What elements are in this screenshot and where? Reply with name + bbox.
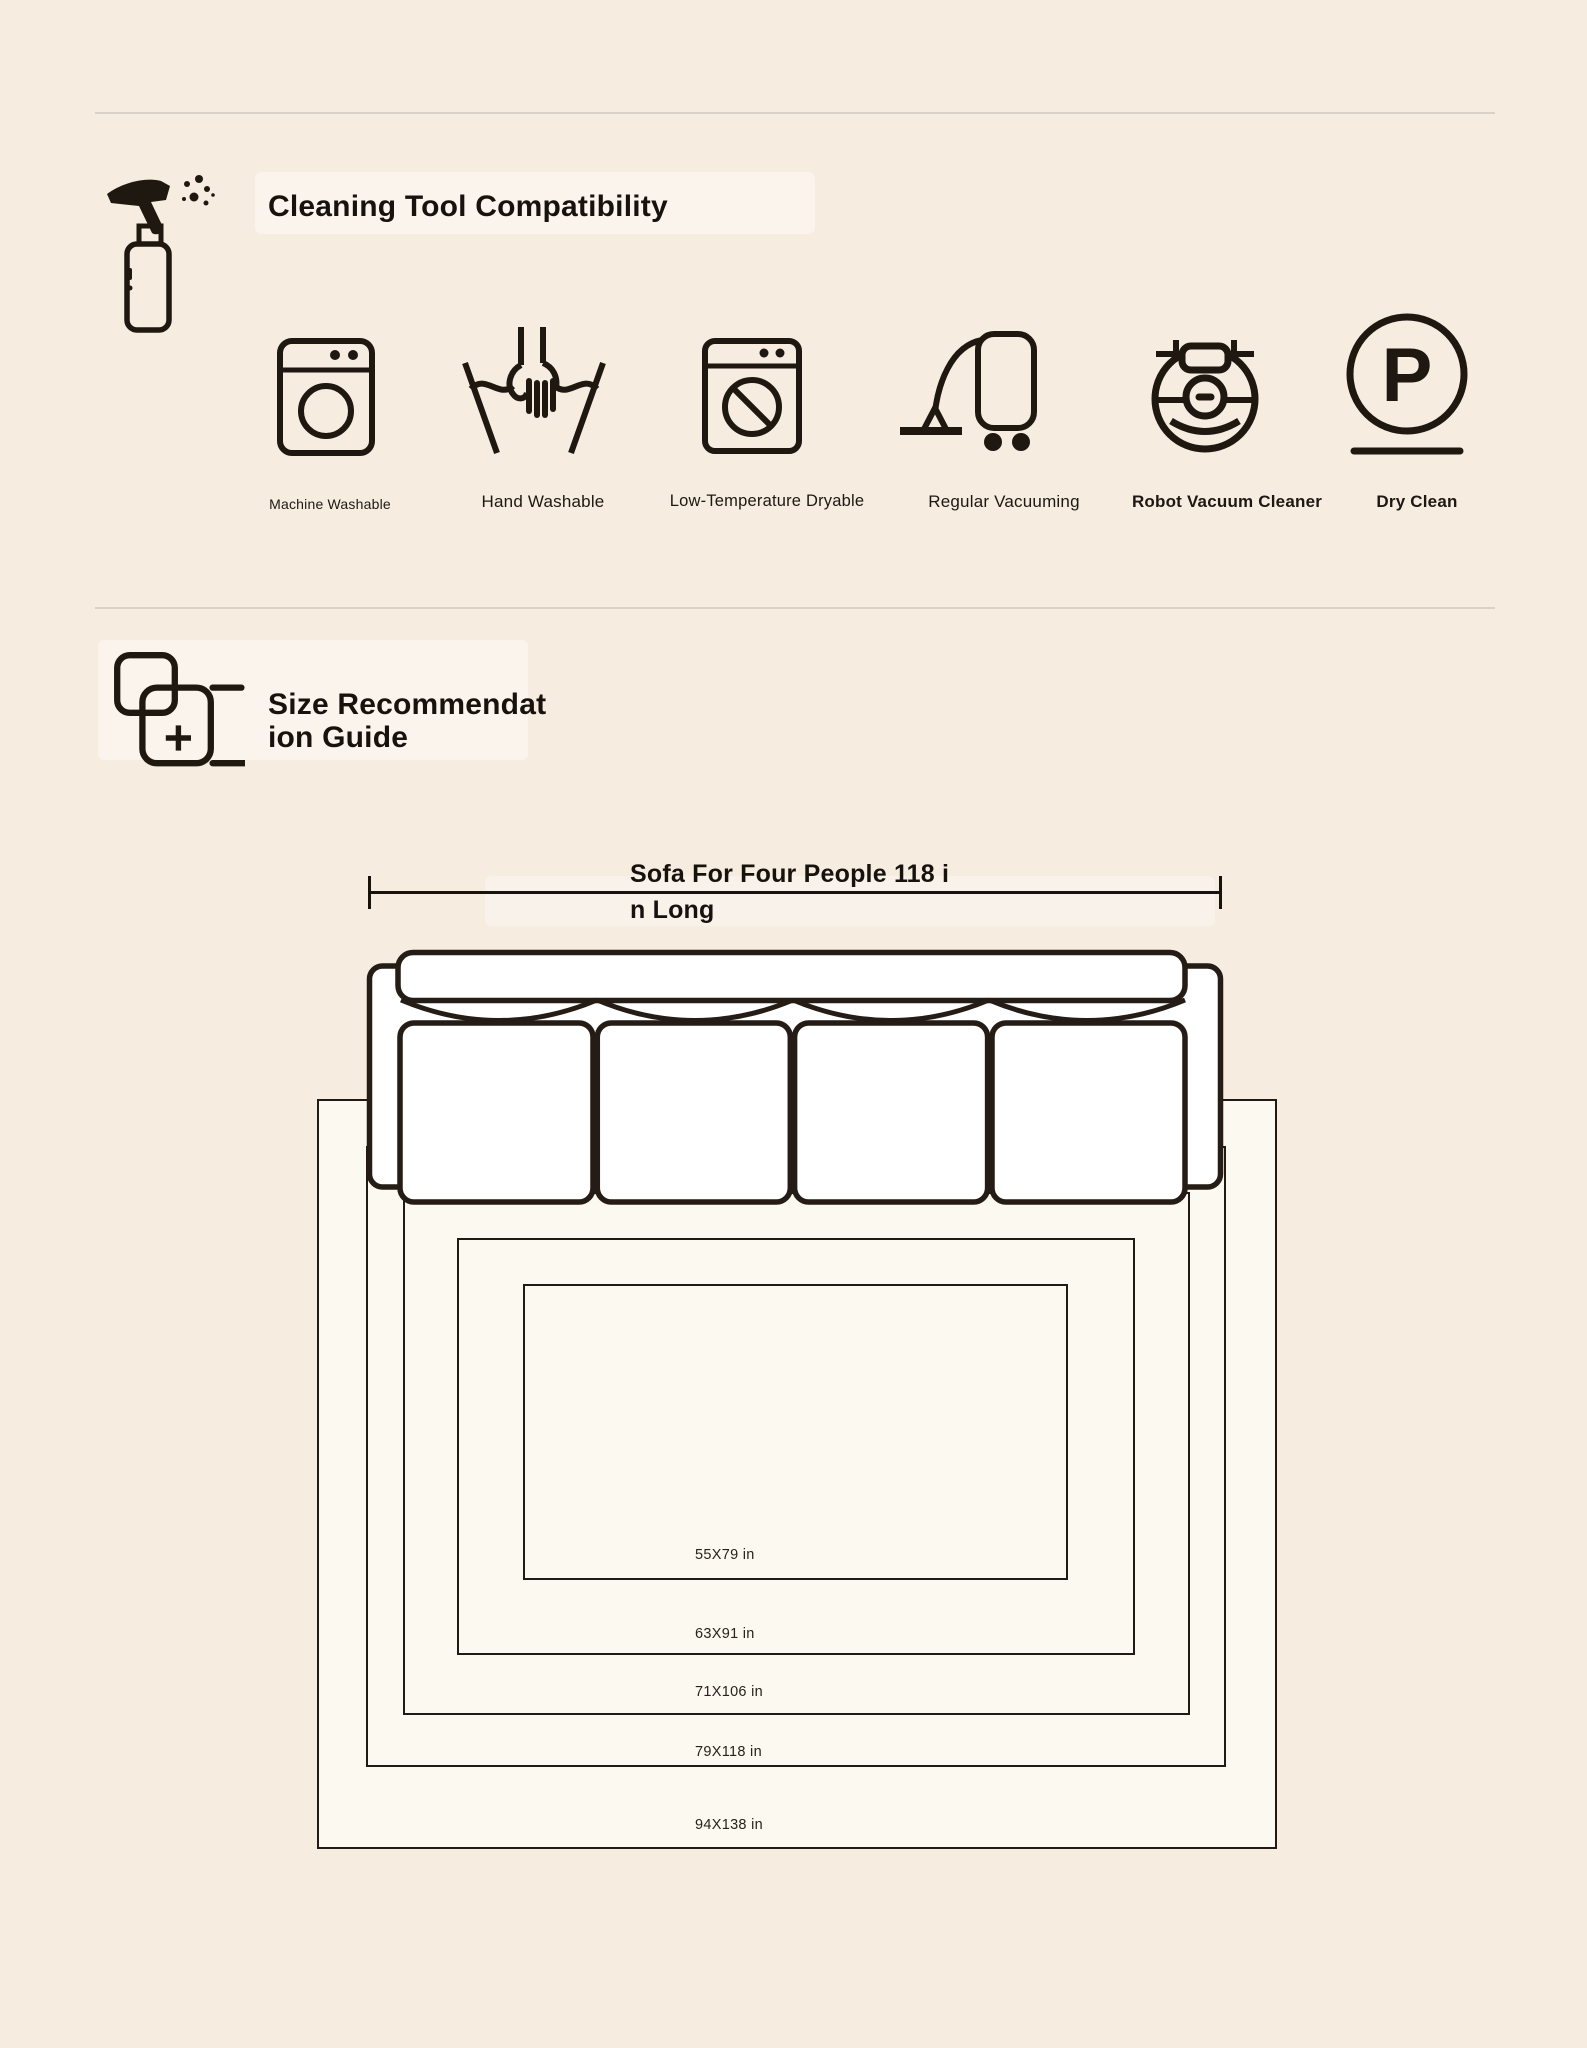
rug-size-label-79x118: 79X118 in bbox=[695, 1744, 762, 1760]
sofa-back-cushion bbox=[398, 953, 1185, 1001]
dry-clean-icon: P bbox=[1342, 308, 1472, 458]
care-label-hand-washable: Hand Washable bbox=[482, 492, 605, 512]
sofa-seat-cushion bbox=[597, 1023, 790, 1202]
size-section-title: Size Recommendat ion Guide bbox=[268, 688, 546, 754]
sofa-seat-cushion bbox=[400, 1023, 593, 1202]
rug-rect-55x79 bbox=[523, 1284, 1068, 1580]
care-label-regular-vacuuming: Regular Vacuuming bbox=[928, 492, 1079, 512]
spray-bottle-icon bbox=[103, 172, 228, 337]
care-label-dry-clean: Dry Clean bbox=[1376, 492, 1457, 512]
vacuum-icon bbox=[890, 328, 1042, 458]
hand-wash-icon bbox=[455, 323, 613, 458]
care-label-machine-washable: Machine Washable bbox=[269, 496, 391, 512]
washing-machine-icon bbox=[275, 336, 377, 458]
robot-vacuum-icon bbox=[1146, 336, 1264, 454]
section-divider-top bbox=[95, 112, 1495, 114]
size-compare-icon bbox=[110, 648, 245, 783]
care-label-robot-vacuum: Robot Vacuum Cleaner bbox=[1132, 492, 1322, 512]
sofa-seat-cushion bbox=[992, 1023, 1185, 1202]
sofa-dimension-label-line2: n Long bbox=[630, 892, 990, 928]
rug-size-label-94x138: 94X138 in bbox=[695, 1817, 763, 1833]
sofa-dimension-tick-right bbox=[1219, 876, 1222, 909]
care-label-low-temp-dryable: Low-Temperature Dryable bbox=[670, 492, 864, 511]
sofa-dimension-tick-left bbox=[368, 876, 371, 909]
sofa-seat-cushion bbox=[795, 1023, 988, 1202]
rug-size-label-71x106: 71X106 in bbox=[695, 1684, 763, 1700]
size-section-title-line2: ion Guide bbox=[268, 721, 546, 754]
dry-clean-letter: P bbox=[1382, 333, 1433, 418]
rug-size-label-63x91: 63X91 in bbox=[695, 1626, 755, 1642]
section-divider-size bbox=[95, 607, 1495, 609]
size-section-title-line1: Size Recommendat bbox=[268, 688, 546, 721]
rug-size-label-55x79: 55X79 in bbox=[695, 1547, 755, 1563]
cleaning-section-title: Cleaning Tool Compatibility bbox=[268, 190, 668, 223]
sofa-top-view bbox=[360, 940, 1230, 1215]
sofa-dimension-label: Sofa For Four People 118 i n Long bbox=[630, 856, 990, 928]
dryer-icon bbox=[700, 336, 804, 456]
sofa-dimension-label-line1: Sofa For Four People 118 i bbox=[630, 856, 990, 892]
product-care-infographic: Cleaning Tool Compatibility bbox=[0, 0, 1587, 2048]
